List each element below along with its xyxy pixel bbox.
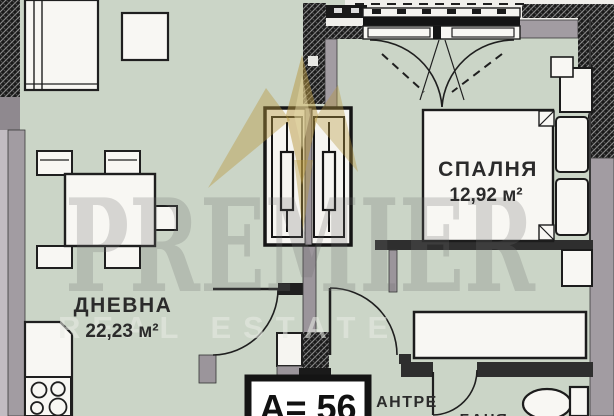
wall-hatch-top-left <box>0 0 20 97</box>
apartment-number: А= 56 <box>259 387 356 416</box>
wall-bathroom-right <box>477 362 593 377</box>
wall-hatch-right-mid <box>588 110 614 158</box>
living-room-area: 22,23 м² <box>85 321 158 342</box>
floorplan-drawing: PREMIER REAL ESTATE ДНЕВНА 22,23 м² СПАЛ… <box>0 0 614 416</box>
toilet <box>523 387 588 416</box>
wall-bathroom-left <box>401 362 433 377</box>
side-table <box>122 13 168 60</box>
living-room-label: ДНЕВНА <box>74 294 173 317</box>
bedroom-area: 12,92 м² <box>449 185 522 206</box>
sofa <box>25 0 98 90</box>
hallway-label: АНТРЕ <box>376 394 438 411</box>
pillow <box>556 179 588 235</box>
pillow <box>556 117 588 172</box>
apartment-number-box: А= 56 <box>248 378 368 416</box>
bathroom-label: БАНЯ <box>460 411 509 416</box>
corridor-niche <box>562 250 592 286</box>
floorplan: PREMIER REAL ESTATE ДНЕВНА 22,23 м² СПАЛ… <box>0 0 614 416</box>
bedroom-label: СПАЛНЯ <box>438 158 538 181</box>
